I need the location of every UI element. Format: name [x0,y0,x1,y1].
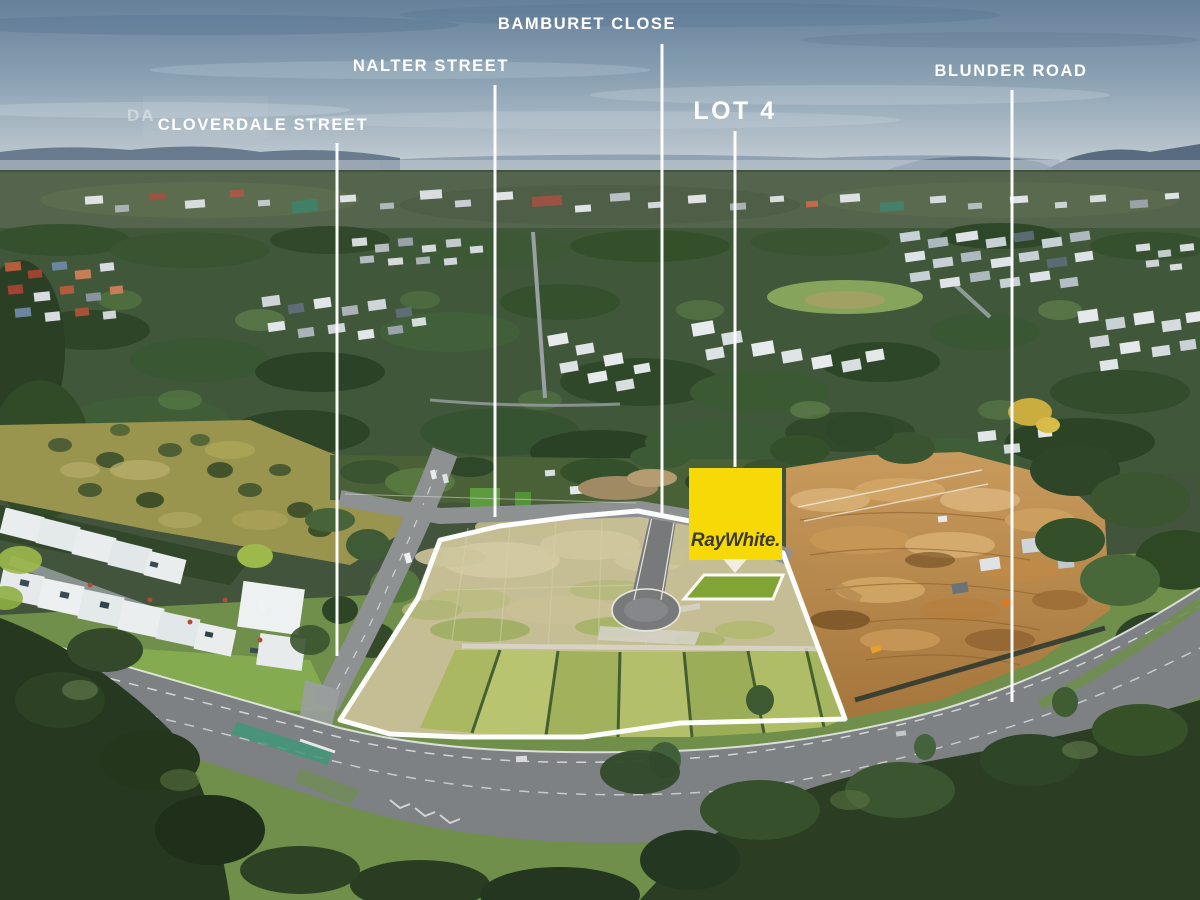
lot-label: LOT 4 [693,97,776,126]
logo-pointer-icon [723,559,747,573]
distant-town [0,172,1200,230]
street-label-blunder: BLUNDER ROAD [934,62,1087,81]
aerial-photo: DA CLOVERDALE STREET NALTER STREET BAMBU… [0,0,1200,900]
street-label-nalter: NALTER STREET [353,57,509,76]
watermark-text: DA [127,106,156,126]
raywhite-wordmark: RayWhite. [689,530,782,552]
raywhite-logo: RayWhite. [689,468,782,560]
street-label-bamburet: BAMBURET CLOSE [498,15,676,34]
street-label-cloverdale: CLOVERDALE STREET [158,116,369,135]
